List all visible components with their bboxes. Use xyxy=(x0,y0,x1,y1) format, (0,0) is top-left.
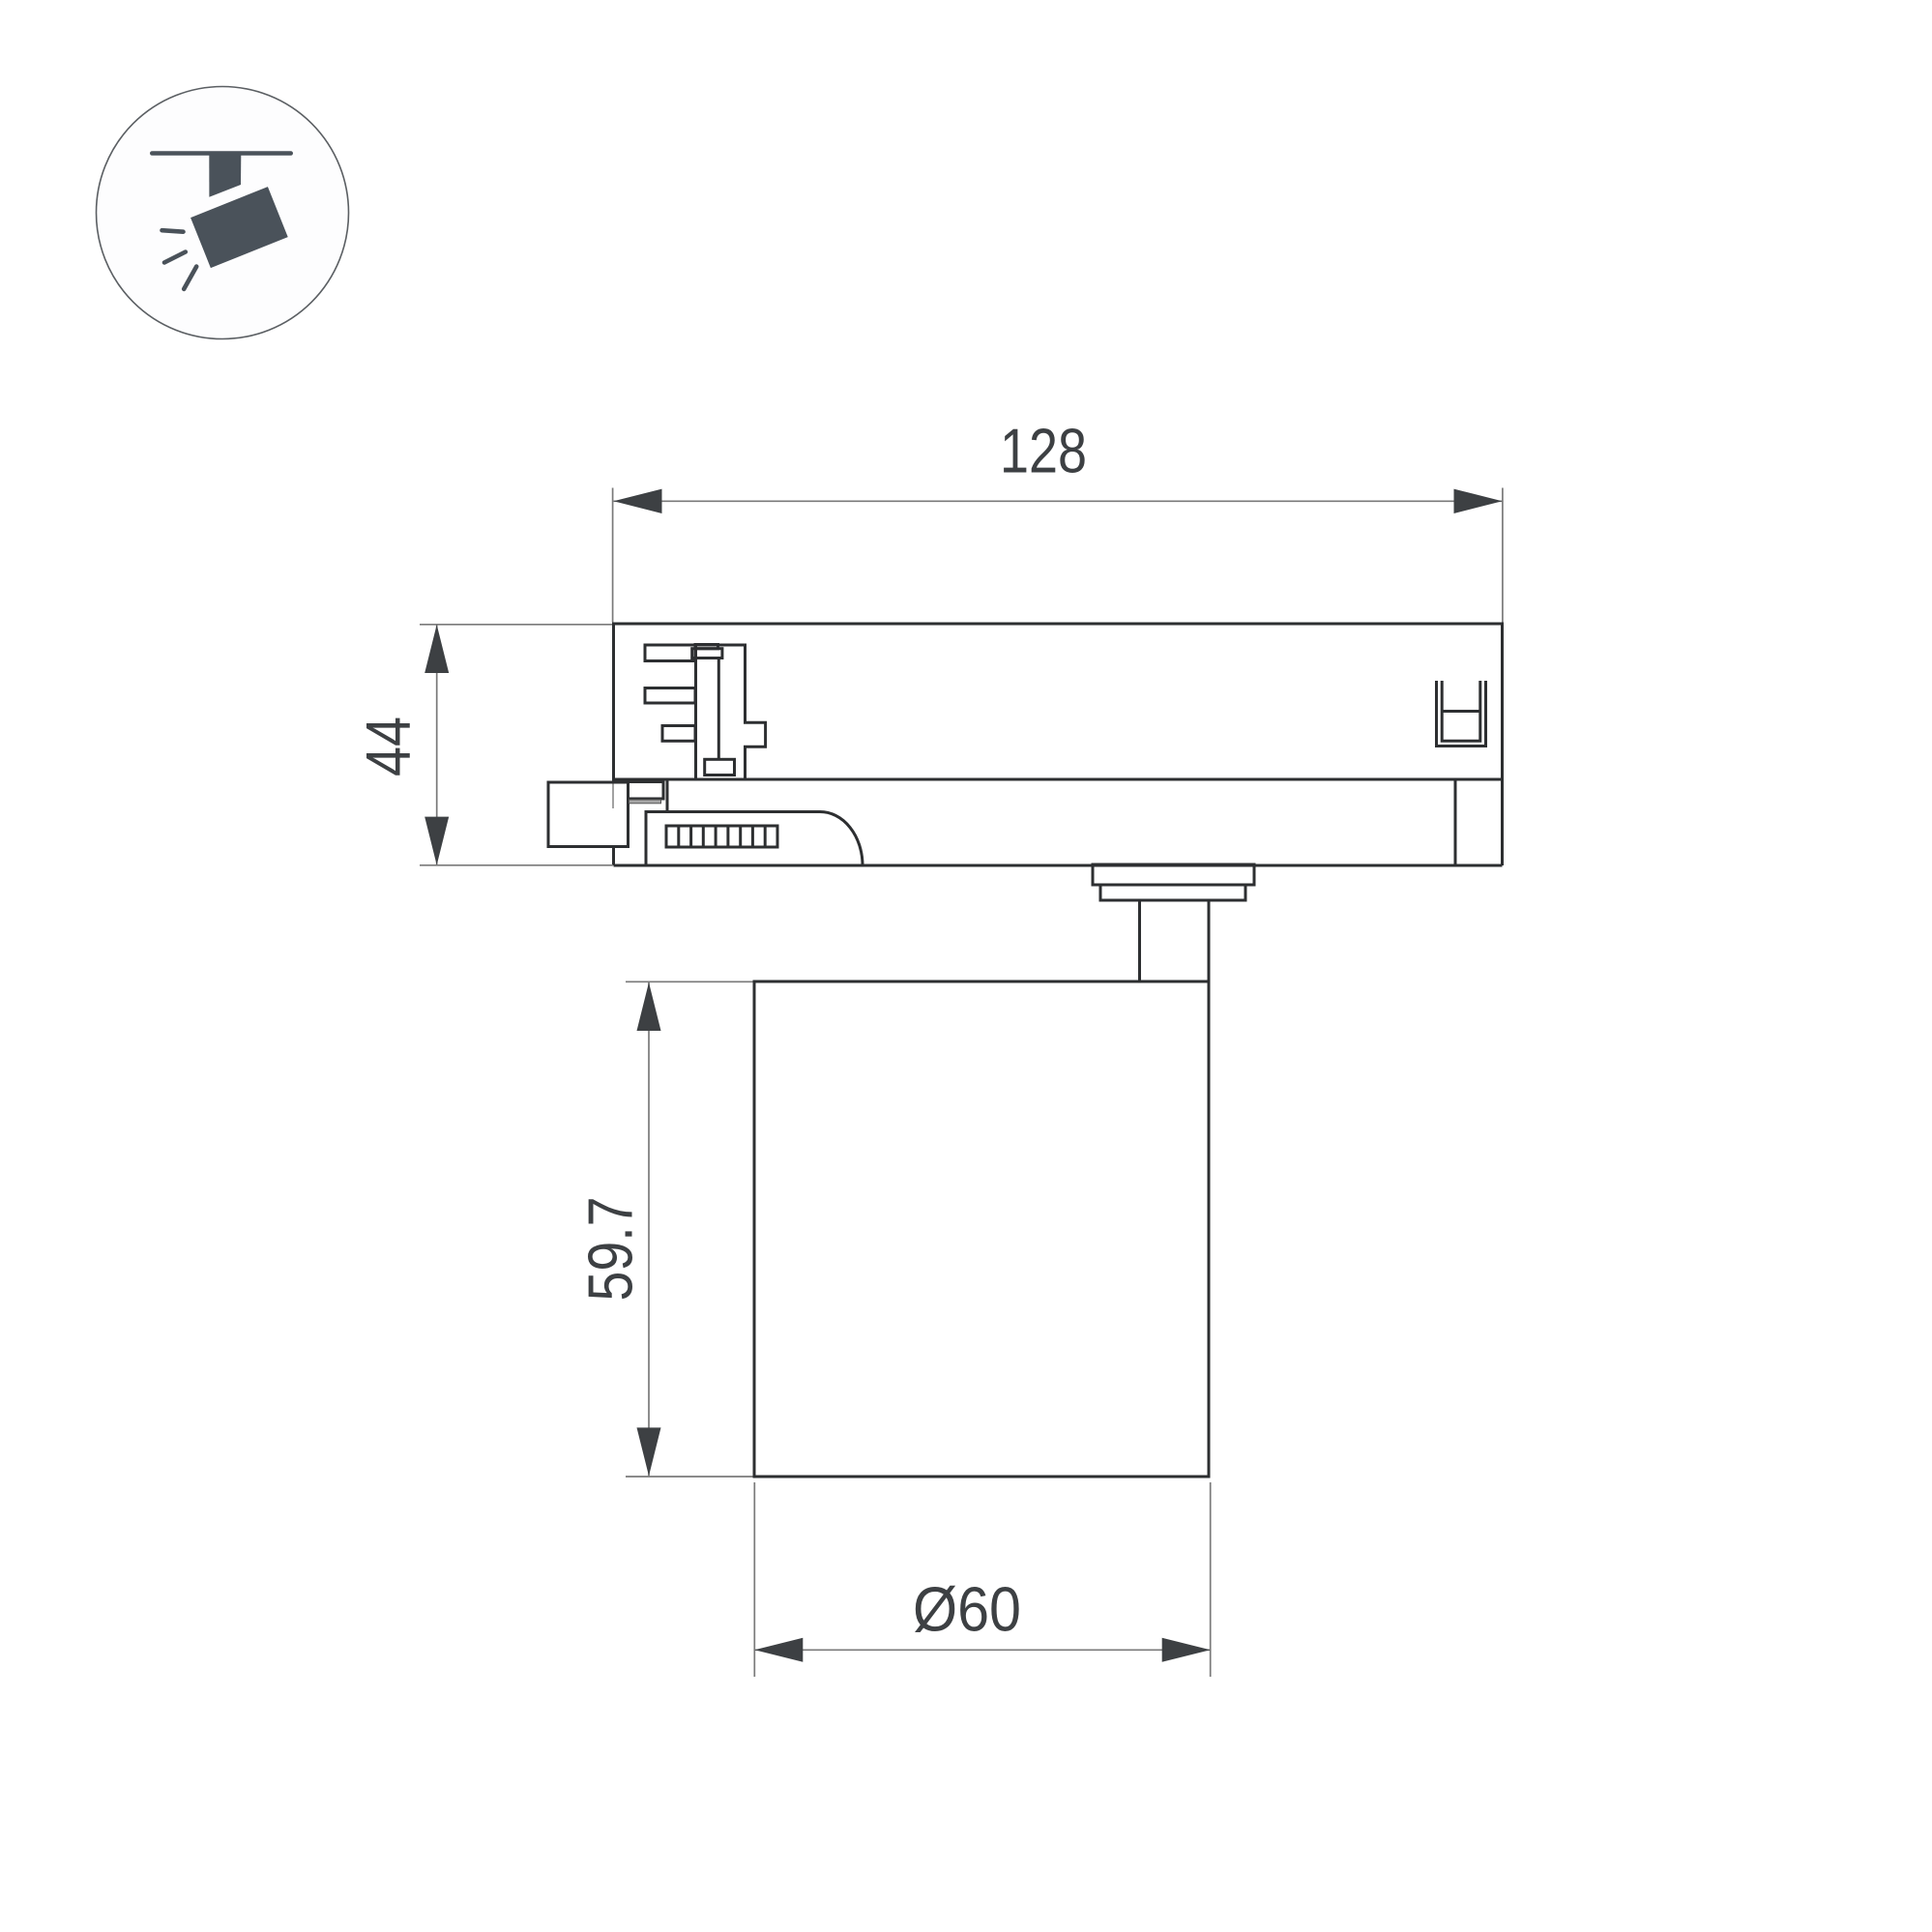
svg-text:Ø60: Ø60 xyxy=(913,1574,1021,1645)
svg-text:44: 44 xyxy=(353,717,424,776)
svg-text:59.7: 59.7 xyxy=(575,1197,646,1302)
svg-text:128: 128 xyxy=(1000,415,1087,485)
